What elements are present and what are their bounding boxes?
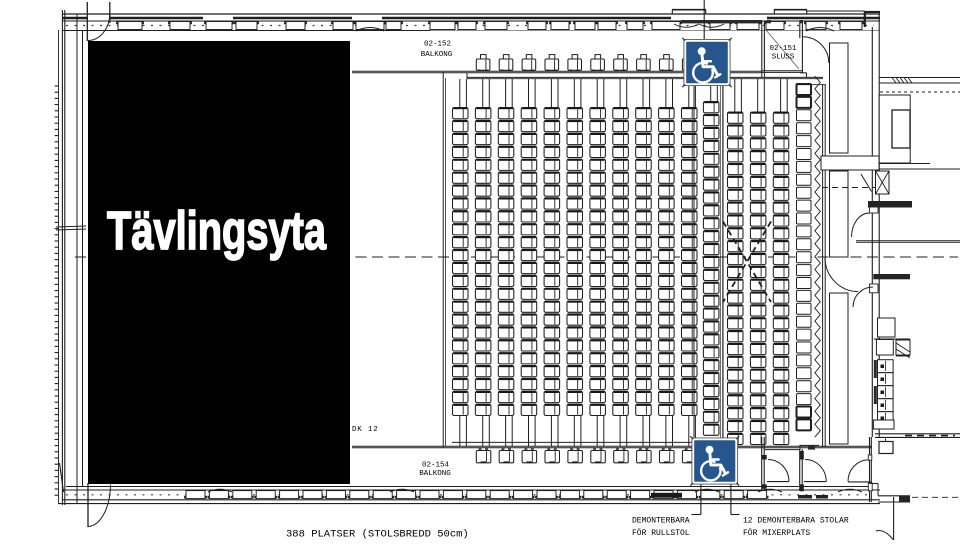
svg-text:02-152: 02-152 (424, 41, 451, 49)
svg-text:DEMONTERBARA: DEMONTERBARA (632, 517, 690, 526)
svg-text:SLUSS: SLUSS (772, 54, 795, 62)
svg-text:388 PLATSER (STOLSBREDD 50cm): 388 PLATSER (STOLSBREDD 50cm) (286, 529, 469, 541)
svg-text:02-151: 02-151 (769, 45, 797, 53)
svg-text:12 DEMONTERBARA STOLAR: 12 DEMONTERBARA STOLAR (743, 517, 849, 526)
svg-text:BALKONG: BALKONG (421, 51, 453, 59)
svg-text:FÖR RULLSTOL: FÖR RULLSTOL (632, 529, 690, 538)
svg-text:02-154: 02-154 (422, 462, 450, 470)
svg-text:Tävlingsyta: Tävlingsyta (107, 201, 327, 261)
svg-text:DK 12: DK 12 (352, 426, 379, 434)
svg-text:FÖR MIXERPLATS: FÖR MIXERPLATS (743, 529, 810, 538)
svg-text:BALKONG: BALKONG (419, 470, 451, 478)
